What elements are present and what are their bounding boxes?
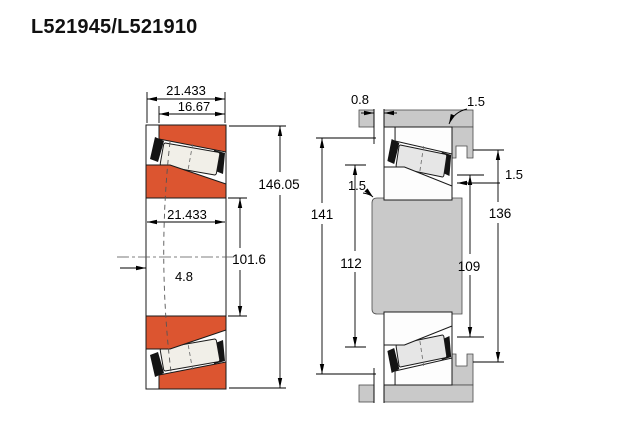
shaft-abutment-diameter-label: 112 <box>340 256 362 271</box>
drawing-page: L521945/L521910 <box>0 0 640 440</box>
housing-fillet-label: 1.5 <box>467 94 485 109</box>
center-offset-label: 4.8 <box>175 269 193 284</box>
right-view-mounting-section: 0.8 1.5 1.5 1.5 1 <box>311 92 523 403</box>
outer-diameter-label: 146.05 <box>258 177 299 192</box>
housing-outer-diameter-label: 141 <box>311 207 334 222</box>
dim-cup-width: 16.67 <box>159 99 225 123</box>
shaft <box>372 198 462 314</box>
bore-width-label: 21.433 <box>167 207 207 222</box>
cup-front-radius-label: 1.5 <box>505 167 523 182</box>
overall-width-label: 21.433 <box>166 83 206 98</box>
mounted-bearing-top-half <box>384 127 452 200</box>
housing-shoulder-bottom <box>452 354 473 385</box>
bearing-top-half <box>146 125 226 198</box>
cover-block-bottom <box>359 385 374 402</box>
dim-bore-diameter: 101.6 <box>228 198 266 316</box>
bearing-bottom-half <box>146 316 226 389</box>
housing-shoulder-top <box>452 127 473 158</box>
mounted-bearing-bottom-half <box>384 312 452 385</box>
bore-diameter-label: 101.6 <box>232 252 266 267</box>
shaft-fillet-label: 1.5 <box>348 178 366 193</box>
annotation-shaft-fillet: 1.5 <box>348 178 373 197</box>
left-view-bearing-section: 21.433 16.67 146.05 21.433 <box>117 83 300 389</box>
housing-band-bottom <box>384 385 473 402</box>
backface-clearance-label: 0.8 <box>351 92 369 107</box>
cup-width-label: 16.67 <box>178 99 211 114</box>
housing-abutment-diameter-label: 136 <box>489 206 512 221</box>
cone-backface-diameter-label: 109 <box>458 259 481 274</box>
technical-drawing: 21.433 16.67 146.05 21.433 <box>0 0 640 440</box>
housing-band-top <box>384 110 473 127</box>
